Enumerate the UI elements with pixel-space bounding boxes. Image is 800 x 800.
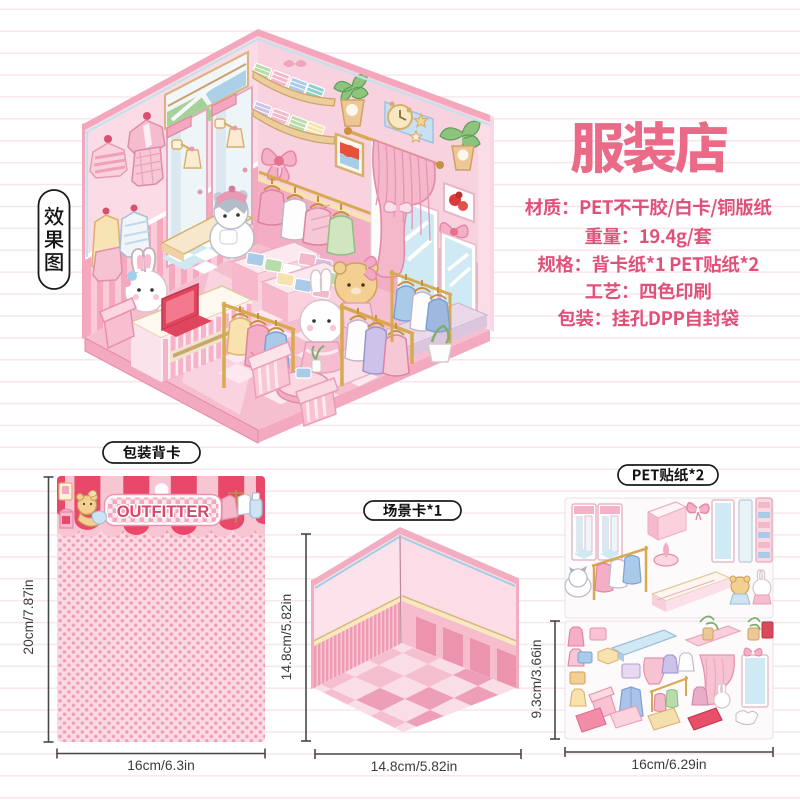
svg-text:16cm/6.3in: 16cm/6.3in bbox=[127, 758, 195, 773]
svg-text:20cm/7.87in: 20cm/7.87in bbox=[21, 579, 36, 654]
svg-text:14.8cm/5.82in: 14.8cm/5.82in bbox=[279, 594, 294, 681]
svg-text:OUTFITTER: OUTFITTER bbox=[117, 503, 210, 521]
svg-text:16cm/6.29in: 16cm/6.29in bbox=[631, 757, 706, 772]
svg-text:14.8cm/5.82in: 14.8cm/5.82in bbox=[371, 759, 458, 774]
svg-text:9.3cm/3.66in: 9.3cm/3.66in bbox=[529, 640, 544, 719]
